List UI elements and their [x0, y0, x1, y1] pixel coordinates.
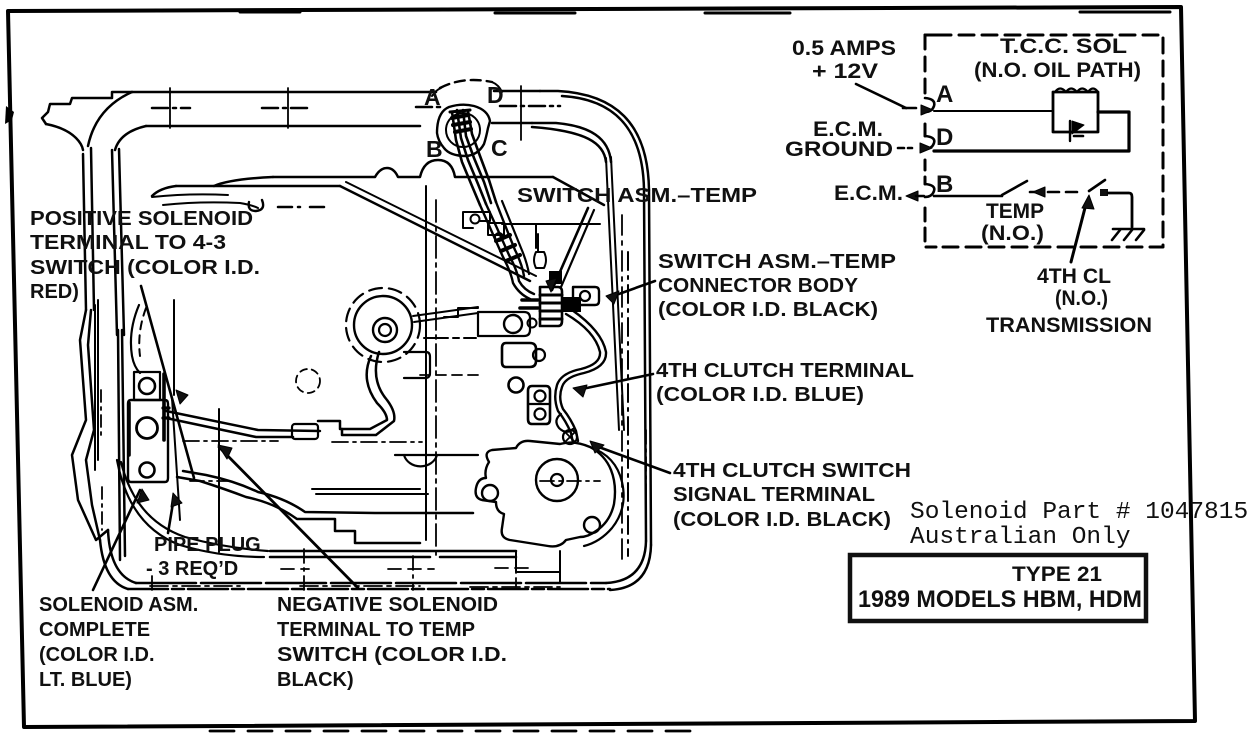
svg-text:Australian Only: Australian Only — [910, 524, 1131, 551]
svg-text:4TH CL: 4TH CL — [1037, 265, 1111, 288]
svg-text:SWITCH (COLOR I.D.: SWITCH (COLOR I.D. — [277, 644, 507, 666]
svg-text:A: A — [936, 81, 953, 108]
svg-text:(N.O.): (N.O.) — [981, 222, 1044, 245]
svg-text:TRANSMISSION: TRANSMISSION — [986, 314, 1152, 337]
svg-text:TEMP: TEMP — [986, 200, 1044, 223]
svg-text:B: B — [426, 136, 443, 162]
svg-text:TERMINAL TO 4-3: TERMINAL TO 4-3 — [30, 232, 226, 254]
svg-text:4TH CLUTCH SWITCH: 4TH CLUTCH SWITCH — [673, 460, 911, 482]
svg-text:NEGATIVE SOLENOID: NEGATIVE SOLENOID — [277, 594, 498, 616]
svg-text:SOLENOID ASM.: SOLENOID ASM. — [39, 594, 198, 616]
svg-text:TERMINAL TO TEMP: TERMINAL TO TEMP — [277, 619, 475, 641]
svg-text:(COLOR I.D. BLACK): (COLOR I.D. BLACK) — [658, 299, 878, 321]
svg-text:COMPLETE: COMPLETE — [39, 619, 150, 641]
svg-text:SWITCH ASM.–TEMP: SWITCH ASM.–TEMP — [658, 251, 896, 273]
svg-text:- 3 REQ’D: - 3 REQ’D — [146, 558, 238, 580]
svg-text:(N.O. OIL PATH): (N.O. OIL PATH) — [974, 59, 1141, 82]
svg-text:C: C — [491, 135, 508, 161]
svg-text:D: D — [936, 124, 953, 151]
svg-text:1989 MODELS HBM, HDM: 1989 MODELS HBM, HDM — [858, 586, 1142, 613]
svg-text:CONNECTOR BODY: CONNECTOR BODY — [658, 275, 859, 297]
svg-text:(COLOR I.D. BLUE): (COLOR I.D. BLUE) — [656, 384, 864, 406]
svg-text:RED): RED) — [30, 281, 79, 303]
svg-text:GROUND: GROUND — [785, 138, 893, 161]
svg-text:SIGNAL TERMINAL: SIGNAL TERMINAL — [673, 484, 875, 506]
svg-text:B: B — [936, 171, 953, 198]
svg-text:0.5 AMPS: 0.5 AMPS — [792, 37, 896, 60]
svg-text:(N.O.): (N.O.) — [1055, 287, 1108, 310]
svg-text:LT. BLUE): LT. BLUE) — [39, 669, 132, 691]
svg-text:4TH CLUTCH TERMINAL: 4TH CLUTCH TERMINAL — [656, 360, 914, 382]
svg-text:T.C.C. SOL: T.C.C. SOL — [1000, 35, 1127, 58]
svg-text:Solenoid Part # 10478150: Solenoid Part # 10478150 — [910, 499, 1248, 526]
svg-text:E.C.M.: E.C.M. — [834, 182, 903, 205]
svg-text:+ 12V: + 12V — [812, 60, 878, 83]
svg-text:SWITCH ASM.–TEMP: SWITCH ASM.–TEMP — [517, 185, 757, 207]
svg-text:SWITCH (COLOR I.D.: SWITCH (COLOR I.D. — [30, 257, 260, 279]
svg-text:PIPE PLUG: PIPE PLUG — [154, 534, 261, 556]
svg-text:(COLOR I.D. BLACK): (COLOR I.D. BLACK) — [673, 509, 891, 531]
svg-text:TYPE 21: TYPE 21 — [1012, 563, 1102, 586]
svg-text:D: D — [487, 82, 504, 108]
svg-text:POSITIVE SOLENOID: POSITIVE SOLENOID — [30, 208, 253, 230]
svg-text:BLACK): BLACK) — [277, 669, 354, 691]
svg-text:A: A — [424, 84, 441, 110]
svg-text:(COLOR I.D.: (COLOR I.D. — [39, 644, 155, 666]
